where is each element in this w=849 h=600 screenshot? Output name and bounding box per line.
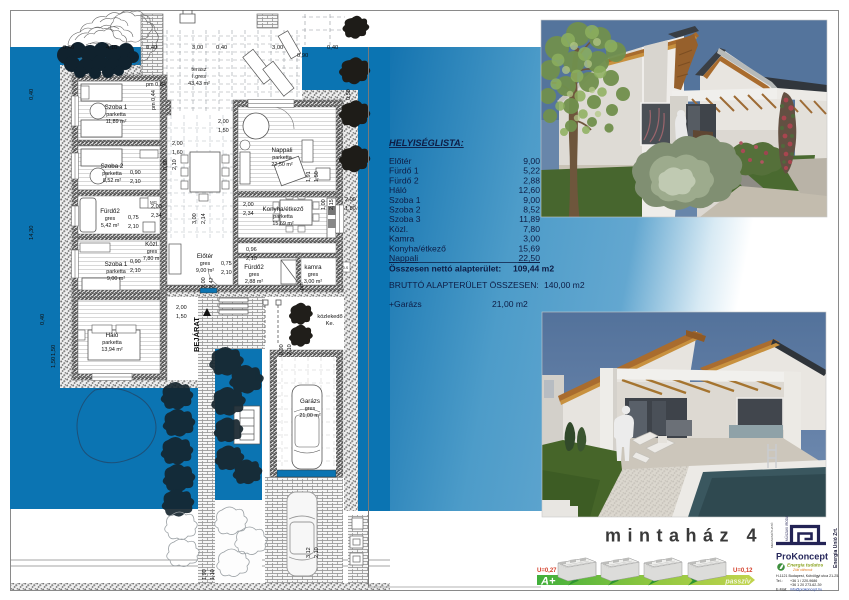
svg-text:2,14: 2,14 <box>201 213 207 224</box>
svg-text:Zöld otthonok: Zöld otthonok <box>792 568 813 572</box>
svg-text:Szoba 1: Szoba 1 <box>105 104 128 111</box>
svg-text:0,90: 0,90 <box>130 259 141 265</box>
svg-text:+36 1 20 273-62-39: +36 1 20 273-62-39 <box>790 583 821 587</box>
svg-text:parketta: parketta <box>272 155 291 161</box>
svg-text:mintaház 4: mintaház 4 <box>605 526 763 546</box>
svg-text:Előtér: Előtér <box>389 156 412 166</box>
svg-text:0,90: 0,90 <box>297 53 308 59</box>
svg-text:13,94 m²: 13,94 m² <box>101 347 122 353</box>
svg-text:1,60: 1,60 <box>172 150 183 156</box>
svg-text:8,52 m²: 8,52 m² <box>103 178 121 184</box>
svg-text:Nappali: Nappali <box>272 147 293 154</box>
svg-text:2,88 m²: 2,88 m² <box>245 279 263 285</box>
svg-text:gres: gres <box>105 216 116 222</box>
svg-text:Konyha/étkező: Konyha/étkező <box>389 243 446 253</box>
svg-text:0,40: 0,40 <box>216 45 227 51</box>
svg-text:pm 0,44: pm 0,44 <box>151 90 157 110</box>
svg-text:14,30: 14,30 <box>29 225 35 240</box>
svg-text:passzív: passzív <box>724 579 751 586</box>
svg-text:terasz: terasz <box>191 67 206 73</box>
svg-text:2,34: 2,34 <box>243 211 254 217</box>
svg-text:2,34: 2,34 <box>151 213 162 219</box>
svg-text:2,00: 2,00 <box>151 204 162 210</box>
svg-text:11,89 m²: 11,89 m² <box>106 119 127 125</box>
svg-text:U=0,12: U=0,12 <box>733 568 753 574</box>
svg-text:MEGSZAKÍTHATÓ: MEGSZAKÍTHATÓ <box>769 522 774 548</box>
svg-text:9,00 m²: 9,00 m² <box>107 276 125 282</box>
svg-text:7,80: 7,80 <box>523 224 540 234</box>
svg-text:Ke.: Ke. <box>326 321 335 327</box>
svg-text:0,40: 0,40 <box>327 45 338 51</box>
svg-text:3,00: 3,00 <box>192 45 203 51</box>
svg-text:2,10: 2,10 <box>128 224 139 230</box>
svg-text:Szoba 2: Szoba 2 <box>101 163 124 170</box>
svg-text:2,10: 2,10 <box>314 547 320 558</box>
svg-text:BRUTTÓ ALAPTERÜLET ÖSSZESEN:: BRUTTÓ ALAPTERÜLET ÖSSZESEN: <box>389 280 539 290</box>
svg-text:15,69: 15,69 <box>518 243 540 253</box>
svg-text:0,90: 0,90 <box>279 344 285 355</box>
svg-text:Fürdő 2: Fürdő 2 <box>389 175 419 185</box>
svg-text:Közl.: Közl. <box>145 241 159 248</box>
svg-text:3,00: 3,00 <box>272 45 283 51</box>
svg-text:1,50: 1,50 <box>176 314 187 320</box>
svg-text:HELYISÉGLISTA:: HELYISÉGLISTA: <box>389 138 464 148</box>
svg-text:2,00: 2,00 <box>176 305 187 311</box>
svg-text:1,50: 1,50 <box>51 345 57 356</box>
svg-text:1,50: 1,50 <box>51 357 57 368</box>
svg-text:0,40: 0,40 <box>63 45 74 51</box>
svg-text:2,88: 2,88 <box>523 175 540 185</box>
svg-text:0,40: 0,40 <box>146 45 157 51</box>
svg-text:gres: gres <box>200 261 211 267</box>
svg-text:Konyha/étkező: Konyha/étkező <box>263 206 304 213</box>
svg-text:3,00: 3,00 <box>523 234 540 244</box>
svg-text:109,44 m2: 109,44 m2 <box>513 264 554 274</box>
svg-text:Szoba 1: Szoba 1 <box>105 261 128 268</box>
svg-text:11,89: 11,89 <box>519 214 540 224</box>
svg-text:pm: pm <box>299 282 305 290</box>
svg-text:2,00: 2,00 <box>243 202 254 208</box>
svg-text:2,10: 2,10 <box>172 159 178 170</box>
svg-text:7,80 m²: 7,80 m² <box>143 256 161 262</box>
svg-text:1,00: 1,00 <box>321 199 327 210</box>
svg-text:info@prokoncept.hu: info@prokoncept.hu <box>790 588 822 592</box>
svg-text:2,10: 2,10 <box>221 270 232 276</box>
svg-text:4,10: 4,10 <box>106 45 117 51</box>
svg-text:22,50: 22,50 <box>518 253 540 263</box>
svg-text:0,40: 0,40 <box>40 314 46 325</box>
svg-text:gres: gres <box>308 272 319 278</box>
svg-text:E-Mail:: E-Mail: <box>776 588 787 592</box>
svg-text:1,91: 1,91 <box>306 171 312 182</box>
svg-text:5,22: 5,22 <box>523 166 540 176</box>
svg-text:9,00: 9,00 <box>523 195 540 205</box>
svg-text:12,60: 12,60 <box>518 185 540 195</box>
svg-text:2,10: 2,10 <box>130 179 141 185</box>
svg-text:2,00: 2,00 <box>345 197 356 203</box>
svg-text:2,00: 2,00 <box>201 277 207 288</box>
svg-text:gres: gres <box>147 249 158 255</box>
svg-text:1,10: 1,10 <box>210 569 216 580</box>
svg-text:1,90: 1,90 <box>202 569 208 580</box>
svg-text:U=0,27: U=0,27 <box>537 568 557 574</box>
svg-text:gres: gres <box>305 406 316 412</box>
svg-text:MŰSZAKI IRODA: MŰSZAKI IRODA <box>784 515 789 541</box>
svg-text:pm 0,84: pm 0,84 <box>146 82 166 88</box>
svg-text:A+: A+ <box>540 576 556 588</box>
svg-text:15,69 m²: 15,69 m² <box>272 221 293 227</box>
svg-text:gres: gres <box>249 272 260 278</box>
svg-text:3,00: 3,00 <box>192 213 198 224</box>
svg-text:2,00: 2,00 <box>172 141 183 147</box>
svg-text:1,50: 1,50 <box>218 128 229 134</box>
svg-text:Összesen nettó alapterület:: Összesen nettó alapterület: <box>389 264 501 274</box>
svg-text:2,15: 2,15 <box>329 199 335 210</box>
svg-text:0,75: 0,75 <box>221 261 232 267</box>
svg-text:2,10: 2,10 <box>287 344 293 355</box>
svg-text:0,75: 0,75 <box>128 215 139 221</box>
svg-text:0,96: 0,96 <box>246 247 257 253</box>
svg-text:Fürdő 1: Fürdő 1 <box>389 166 419 176</box>
svg-text:Közl.: Közl. <box>389 224 408 234</box>
svg-text:Fürdő2: Fürdő2 <box>100 208 120 215</box>
svg-text:parketta: parketta <box>102 340 121 346</box>
svg-text:0,40: 0,40 <box>29 89 35 100</box>
svg-text:5,42 m²: 5,42 m² <box>101 223 119 229</box>
svg-text:közlekedő: közlekedő <box>317 314 342 320</box>
svg-text:parketta: parketta <box>106 112 125 118</box>
svg-text:H-1121 Budapest, Kútvölgyi utc: H-1121 Budapest, Kútvölgyi utca 21-25. <box>776 574 839 578</box>
svg-text:0,50: 0,50 <box>346 89 352 100</box>
svg-text:43,43 m²: 43,43 m² <box>188 81 210 87</box>
svg-text:21,00 m²: 21,00 m² <box>299 413 320 419</box>
svg-text:8,52: 8,52 <box>523 205 540 215</box>
svg-text:parketta: parketta <box>106 269 125 275</box>
svg-text:BEJÁRAT: BEJÁRAT <box>192 317 201 352</box>
svg-text:Tel.:: Tel.: <box>776 579 783 583</box>
svg-text:2,00: 2,00 <box>218 119 229 125</box>
svg-text:kamra: kamra <box>304 264 322 271</box>
svg-text:2,47: 2,47 <box>209 277 215 288</box>
svg-text:21,00 m2: 21,00 m2 <box>492 299 528 309</box>
svg-text:I.gres: I.gres <box>192 74 206 80</box>
svg-text:3,12: 3,12 <box>306 547 312 558</box>
svg-text:parketta: parketta <box>273 214 292 220</box>
svg-text:2,10: 2,10 <box>130 268 141 274</box>
svg-text:1,50: 1,50 <box>314 171 320 182</box>
svg-text:9,00 m²: 9,00 m² <box>196 268 214 274</box>
svg-text:Kamra: Kamra <box>389 234 415 244</box>
svg-text:Nappali: Nappali <box>389 253 418 263</box>
svg-text:parketta: parketta <box>102 171 121 177</box>
svg-text:0,90: 0,90 <box>130 170 141 176</box>
svg-text:Garázs: Garázs <box>300 398 320 405</box>
svg-text:2,10: 2,10 <box>246 256 257 262</box>
svg-text:ProKoncept: ProKoncept <box>776 552 828 562</box>
svg-text:9,00: 9,00 <box>523 156 540 166</box>
svg-text:Energia Unió Zrt.: Energia Unió Zrt. <box>833 527 839 568</box>
svg-text:Szoba 2: Szoba 2 <box>389 205 421 215</box>
svg-text:22,50 m²: 22,50 m² <box>271 162 292 168</box>
svg-text:+Garázs: +Garázs <box>389 299 422 309</box>
svg-text:0,80: 0,80 <box>163 159 169 170</box>
svg-text:Szoba 3: Szoba 3 <box>389 214 421 224</box>
svg-text:1,50: 1,50 <box>345 206 356 212</box>
svg-text:Háló: Háló <box>106 332 119 339</box>
svg-text:Háló: Háló <box>389 185 407 195</box>
svg-text:140,00 m2: 140,00 m2 <box>544 280 585 290</box>
svg-text:3,00 m²: 3,00 m² <box>304 279 322 285</box>
svg-text:Szoba 1: Szoba 1 <box>389 195 421 205</box>
svg-text:Előtér: Előtér <box>197 253 213 260</box>
svg-text:Fürdő2: Fürdő2 <box>244 264 264 271</box>
